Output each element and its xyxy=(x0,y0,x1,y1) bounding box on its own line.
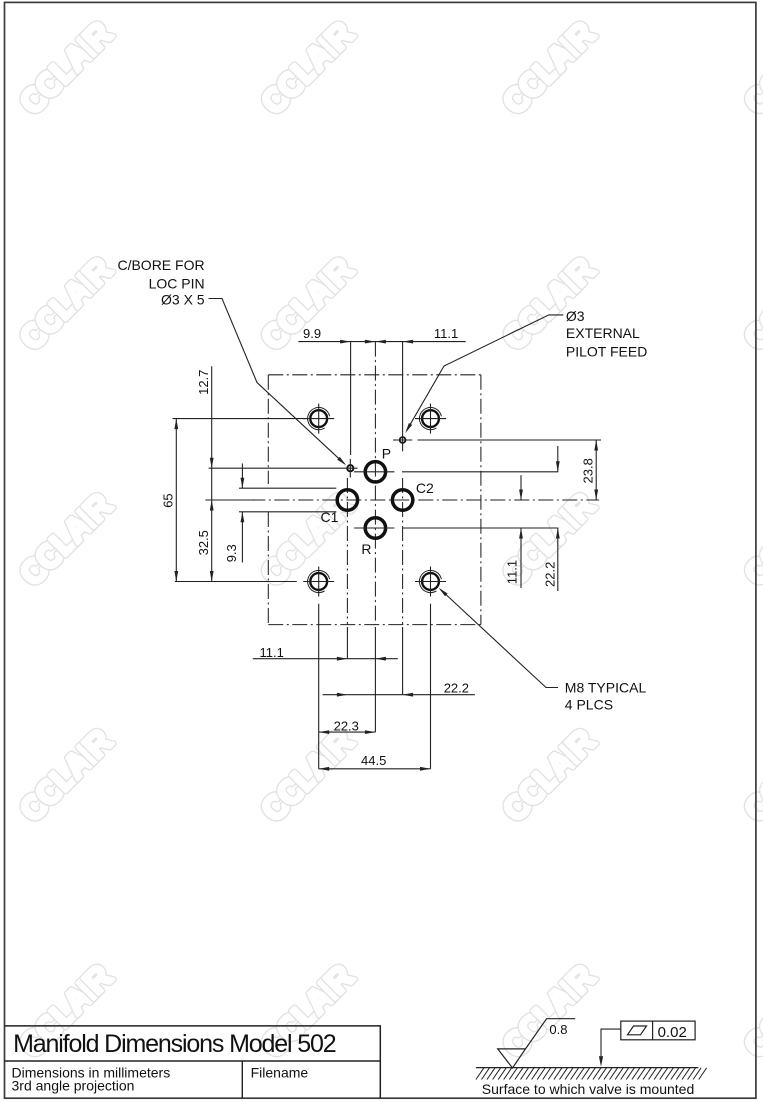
svg-text:R: R xyxy=(361,541,371,557)
svg-text:22.2: 22.2 xyxy=(444,681,469,696)
svg-text:9.3: 9.3 xyxy=(224,544,239,562)
svg-text:EXTERNAL: EXTERNAL xyxy=(566,325,640,341)
svg-text:3rd angle projection: 3rd angle projection xyxy=(12,1077,135,1093)
svg-text:22.2: 22.2 xyxy=(542,562,557,587)
svg-text:Ø3: Ø3 xyxy=(566,308,585,324)
svg-text:C/BORE FOR: C/BORE FOR xyxy=(117,257,204,273)
svg-text:22.3: 22.3 xyxy=(334,718,359,733)
svg-text:23.8: 23.8 xyxy=(581,458,596,483)
svg-text:9.9: 9.9 xyxy=(303,326,321,341)
svg-text:Filename: Filename xyxy=(251,1064,309,1080)
svg-text:0.02: 0.02 xyxy=(658,1024,687,1041)
svg-text:32.5: 32.5 xyxy=(196,530,211,555)
svg-text:Manifold Dimensions Model 502: Manifold Dimensions Model 502 xyxy=(13,1030,336,1058)
svg-text:M8 TYPICAL: M8 TYPICAL xyxy=(565,680,647,696)
svg-text:4 PLCS: 4 PLCS xyxy=(565,697,613,713)
svg-text:44.5: 44.5 xyxy=(361,753,386,768)
svg-text:LOC PIN: LOC PIN xyxy=(149,276,205,292)
svg-text:11.1: 11.1 xyxy=(434,326,458,341)
svg-text:65: 65 xyxy=(161,493,176,507)
svg-text:P: P xyxy=(382,446,391,462)
svg-text:12.7: 12.7 xyxy=(196,370,211,395)
svg-text:Ø3 X 5: Ø3 X 5 xyxy=(161,292,205,308)
svg-text:C2: C2 xyxy=(416,480,434,496)
svg-text:11.1: 11.1 xyxy=(504,560,519,584)
svg-text:11.1: 11.1 xyxy=(260,645,284,660)
svg-text:PILOT FEED: PILOT FEED xyxy=(566,343,647,359)
svg-text:0.8: 0.8 xyxy=(549,1022,567,1037)
svg-text:Surface to which valve is moun: Surface to which valve is mounted xyxy=(482,1081,694,1097)
